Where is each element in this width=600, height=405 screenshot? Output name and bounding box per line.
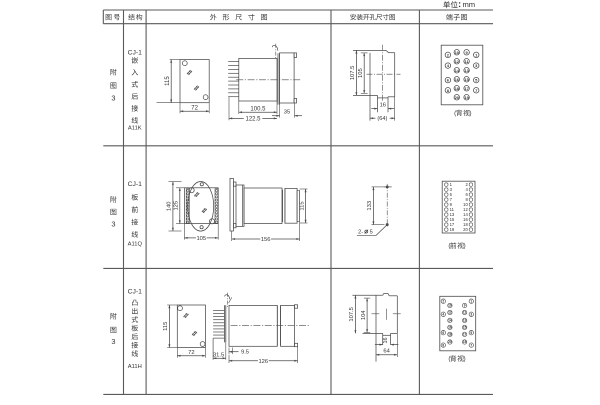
svg-text:(64): (64) [377,116,387,122]
svg-text:105: 105 [358,68,364,78]
svg-text:104: 104 [361,310,367,320]
svg-text:64: 64 [383,349,390,355]
svg-text:20: 20 [463,227,468,232]
svg-text:72: 72 [191,106,198,112]
svg-text:4: 4 [442,313,444,317]
svg-text:): ) [469,110,471,117]
svg-text:mm: mm [462,0,475,9]
svg-text:5: 5 [370,229,373,235]
svg-text:18: 18 [455,86,460,91]
svg-text:14: 14 [448,319,452,323]
svg-text:16: 16 [383,338,389,344]
svg-text:100.5: 100.5 [250,107,266,113]
svg-text:1: 1 [470,299,472,303]
svg-text:14: 14 [455,68,460,73]
svg-text:CJ-1: CJ-1 [128,181,143,188]
svg-text:3: 3 [111,219,115,228]
svg-text:107.5: 107.5 [349,307,355,322]
svg-text:17: 17 [464,86,469,91]
svg-text:105: 105 [196,236,206,242]
svg-text:11: 11 [463,311,467,315]
svg-text:115: 115 [299,201,305,210]
svg-text:19: 19 [450,227,455,232]
svg-text:19: 19 [463,340,467,344]
svg-text:18: 18 [448,333,452,337]
svg-text:5: 5 [470,331,472,335]
svg-text:3: 3 [111,337,115,346]
svg-text:2-: 2- [358,229,363,235]
svg-text:13: 13 [464,68,469,73]
svg-text:12: 12 [455,59,460,64]
svg-text:CJ-1: CJ-1 [128,289,143,296]
svg-text:): ) [464,243,466,250]
svg-text:19: 19 [464,95,469,100]
svg-text:140: 140 [167,201,173,211]
svg-text:2: 2 [442,299,444,303]
svg-text:20: 20 [455,95,460,100]
svg-text:13: 13 [463,319,467,323]
svg-text:115: 115 [165,76,171,86]
svg-text:10: 10 [448,304,452,308]
svg-text:115: 115 [163,322,169,331]
svg-text:3: 3 [470,313,472,317]
svg-text:9: 9 [464,304,466,308]
svg-text:16: 16 [455,77,460,82]
svg-text:CJ-1: CJ-1 [128,49,143,56]
svg-text:107.5: 107.5 [350,66,356,81]
svg-text:): ) [464,356,466,363]
svg-text:6: 6 [442,331,444,335]
svg-text:156: 156 [261,237,271,243]
svg-text:3: 3 [111,94,115,103]
svg-text:10: 10 [455,50,460,55]
svg-text:9.5: 9.5 [241,350,249,356]
svg-text:16: 16 [380,102,386,108]
svg-text:72: 72 [188,350,194,356]
svg-text:8: 8 [442,343,444,347]
svg-text:133: 133 [367,201,373,211]
svg-text:17: 17 [463,333,467,337]
svg-text:122.5: 122.5 [245,117,261,123]
svg-text:125: 125 [174,201,180,211]
svg-text:A11Q: A11Q [128,241,143,247]
svg-text:15: 15 [463,326,467,330]
svg-text:A11K: A11K [128,125,142,131]
svg-text:16: 16 [448,326,452,330]
svg-text:126: 126 [258,359,268,365]
svg-text:12: 12 [448,311,452,315]
svg-text:A11H: A11H [128,364,142,370]
svg-text:7: 7 [470,343,472,347]
svg-text:35: 35 [284,110,290,116]
svg-text:15: 15 [464,77,469,82]
svg-text:20: 20 [448,340,452,344]
svg-text:31.5: 31.5 [213,352,224,358]
